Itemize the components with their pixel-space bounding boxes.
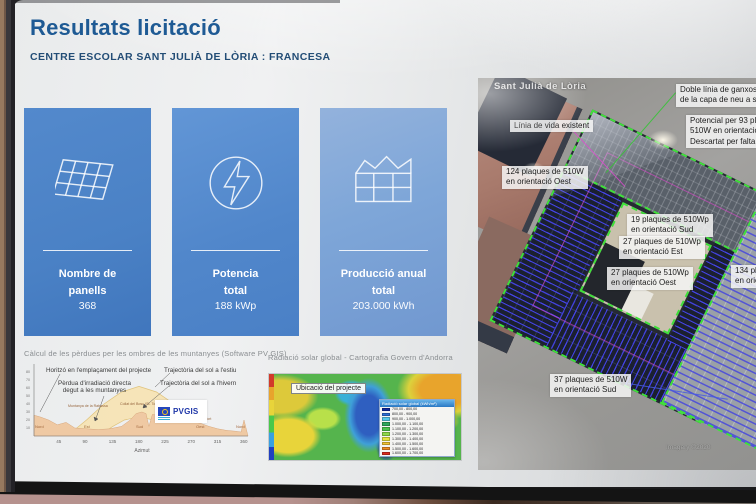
card-value: 368 (28, 300, 147, 312)
x-tick-label: 270 (188, 439, 196, 444)
card-label-line1: Potencia (213, 268, 259, 280)
annotation-line: Descartat per falta de (690, 137, 756, 147)
annotation-snow-hooks: Doble línia de ganxos p de la capa de ne… (676, 84, 756, 107)
x-tick-label: 360 (240, 439, 248, 444)
annotation-line: en orientació Oest (506, 177, 584, 187)
annotation-line: 37 plaques de 510W (554, 375, 627, 385)
legend-rows: 700,00 - 800,00800,00 - 900,00900,00 - 1… (380, 407, 454, 456)
eu-flag-icon (158, 407, 170, 416)
legend-label: 1.600,00 - 1.700,00 (392, 451, 423, 455)
annotation-line: en orientació Sud (554, 385, 627, 395)
page-subtitle: CENTRE ESCOLAR SANT JULIÀ DE LÒRIA : FRA… (30, 51, 331, 63)
annotation-line: 510W en orientació N (690, 126, 756, 136)
legend-swatch (382, 437, 390, 441)
screen-left-bezel (0, 0, 15, 492)
legend-label: 1.200,00 - 1.300,00 (392, 432, 423, 436)
annotation-line: 124 plaques de 510W (506, 167, 584, 177)
x-axis-label: Azimut (24, 448, 260, 454)
legend-label: 1.500,00 - 1.600,00 (392, 447, 423, 451)
imagery-watermark: Imagery ©2020 (666, 444, 711, 451)
radiation-map-caption: Radiació solar global - Cartografia Gove… (268, 353, 453, 362)
loss-annotation-line1: Pèrdua d'irradiació directa (58, 380, 131, 387)
legend-label: 900,00 - 1.000,00 (392, 417, 420, 421)
card-produccio-anual: Producció anual total 203.000 kWh (320, 108, 447, 336)
annotation-line: Línia de vida existent (514, 121, 589, 131)
annotation-124-west: 124 plaques de 510W en orientació Oest (502, 166, 588, 189)
pvgis-logo-lines (158, 417, 170, 421)
y-tick-label: 50 (26, 394, 30, 398)
legend-swatch (382, 447, 390, 451)
loss-annotation-line2: degut a les muntanyes (63, 387, 126, 394)
card-label: Producció anual total (324, 266, 443, 300)
card-divider (339, 250, 428, 251)
horizon-loss-chart: Horitzó en l'emplaçament del projecte Pè… (24, 360, 260, 460)
terrain-label: Muntanya de la Rabassa (68, 404, 108, 408)
x-tick-label: 315 (214, 439, 222, 444)
card-potencia-total: Potencia total 188 kWp (172, 108, 299, 336)
legend-label: 1.100,00 - 1.200,00 (392, 427, 423, 431)
legend-swatch (382, 432, 390, 436)
winter-sun-annotation: Trajectòria del sol a l'hivern (160, 380, 236, 387)
compass-label: Nord (35, 424, 44, 429)
annotation-lifeline: Línia de vida existent (510, 120, 593, 132)
legend-label: 800,00 - 900,00 (392, 412, 417, 416)
y-tick-label: 20 (26, 418, 30, 422)
annotation-line: de la capa de neu a sob (680, 95, 756, 105)
annotation-line: 27 plaques de 510Wp (623, 237, 701, 247)
legend-label: 700,00 - 800,00 (392, 407, 417, 411)
pvgis-logo: PVGIS (155, 400, 207, 423)
y-tick-label: 80 (26, 370, 30, 374)
annotation-line: en orie (735, 276, 756, 286)
annotation-line: en orientació Oest (611, 278, 689, 288)
horizon-chart-caption: Càlcul de les pèrdues per les ombres de … (24, 349, 287, 358)
pvgis-logo-text: PVGIS (173, 407, 198, 416)
annotation-line: en orientació Sud (631, 225, 709, 235)
card-divider (191, 250, 280, 251)
legend-swatch (382, 417, 390, 421)
annotation-134-clipped: 134 pla en orie (731, 265, 756, 288)
legend-title: Radiació solar global (kWh/m²) (380, 400, 454, 407)
annotation-line: Doble línia de ganxos p (680, 85, 756, 95)
annotation-27-west: 27 plaques de 510Wp en orientació Oest (607, 267, 693, 290)
card-label-line2: total (372, 285, 395, 297)
annotation-line: en orientació Est (623, 247, 701, 257)
solar-radiation-map: Ubicació del projecte Radiació solar glo… (268, 373, 462, 461)
loss-annotation: Pèrdua d'irradiació directa degut a les … (58, 380, 131, 394)
solar-panel-icon (55, 152, 121, 217)
y-tick-label: 10 (26, 426, 30, 430)
summer-sun-annotation: Trajectòria del sol a l'estiu (164, 367, 236, 374)
annotation-37-south: 37 plaques de 510W en orientació Sud (550, 374, 631, 397)
legend-label: 1.400,00 - 1.500,00 (392, 442, 423, 446)
card-label-line1: Nombre de (59, 268, 116, 280)
card-value: 188 kWp (176, 300, 295, 312)
compass-label: Est (84, 424, 90, 429)
photographed-slide: Resultats licitació CENTRE ESCOLAR SANT … (0, 0, 756, 504)
page-title: Resultats licitació (30, 15, 221, 41)
card-label: Potencia total (176, 266, 295, 300)
y-tick-label: 30 (26, 410, 30, 414)
card-nombre-panells: Nombre de panells 368 (24, 108, 151, 336)
x-tick-label: 90 (83, 439, 88, 444)
horizon-annotation: Horitzó en l'emplaçament del projecte (46, 367, 151, 374)
y-tick-label: 60 (26, 386, 30, 390)
legend-swatch (382, 442, 390, 446)
x-tick-label: 225 (161, 439, 169, 444)
compass-label: Sud (136, 424, 143, 429)
legend-swatch (382, 408, 390, 412)
card-label-line1: Producció anual (341, 268, 427, 280)
annotation-line: 19 plaques de 510Wp (631, 215, 709, 225)
legend-swatch (382, 413, 390, 417)
legend-label: 1.300,00 - 1.400,00 (392, 437, 423, 441)
card-label-line2: panells (69, 285, 107, 297)
legend-swatch (382, 452, 390, 456)
screen-top-edge (0, 0, 340, 3)
map-legend: Radiació solar global (kWh/m²) 700,00 - … (379, 399, 455, 457)
x-tick-label: 180 (135, 439, 143, 444)
annotation-27-east: 27 plaques de 510Wp en orientació Est (619, 236, 705, 259)
x-tick-label: 135 (109, 439, 117, 444)
annotation-line: 134 pla (735, 266, 756, 276)
card-label: Nombre de panells (28, 266, 147, 300)
compass-label: Nord (236, 424, 245, 429)
y-tick-label: 70 (26, 378, 30, 382)
project-location-label: Ubicació del projecte (291, 383, 366, 394)
legend-swatch (382, 427, 390, 431)
legend-swatch (382, 422, 390, 426)
x-tick-label: 45 (56, 439, 61, 444)
annotation-19-south: 19 plaques de 510Wp en orientació Sud (627, 214, 713, 237)
compass-label: Oest (196, 424, 204, 429)
y-tick-label: 40 (26, 402, 30, 406)
place-name-label: Sant Julià de Lòria (494, 81, 586, 92)
satellite-image: Sant Julià de Lòria Doble línia de ganxo… (478, 78, 756, 470)
annotation-line: Potencial per 93 plaq (690, 116, 756, 126)
lightning-bolt-icon (205, 152, 267, 219)
card-label-line2: total (224, 285, 247, 297)
legend-row: 1.600,00 - 1.700,00 (380, 451, 454, 456)
card-value: 203.000 kWh (324, 300, 443, 312)
annotation-line: 27 plaques de 510Wp (611, 268, 689, 278)
card-divider (43, 250, 132, 251)
legend-label: 1.000,00 - 1.100,00 (392, 422, 423, 426)
annotation-potential-93: Potencial per 93 plaq 510W en orientació… (686, 115, 756, 148)
annual-production-icon (352, 152, 416, 215)
